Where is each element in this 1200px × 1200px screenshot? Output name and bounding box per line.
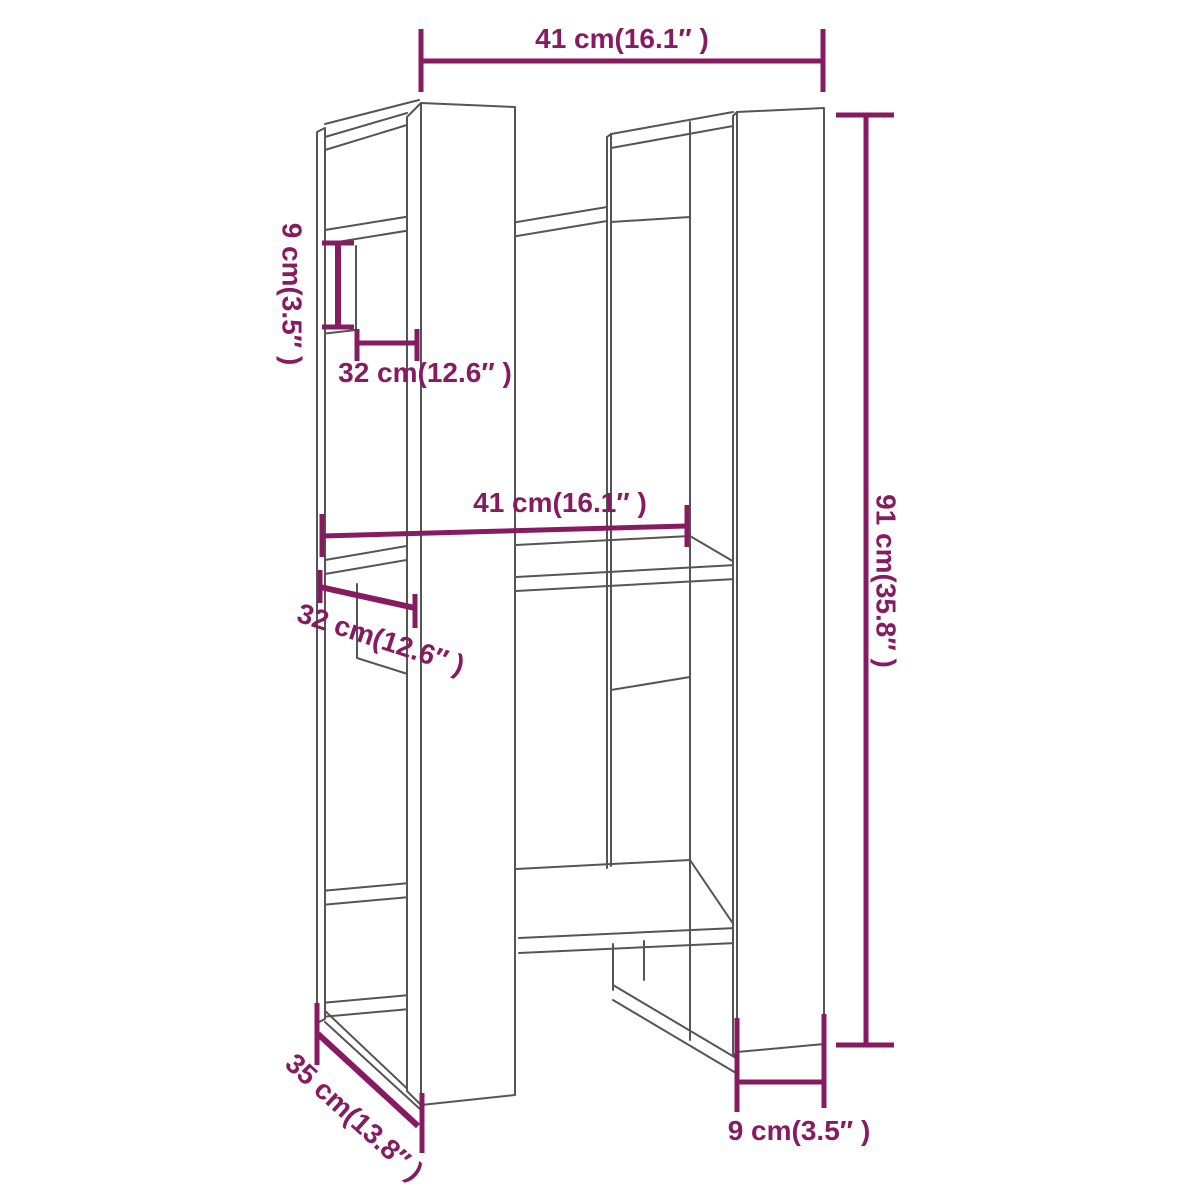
dimension-right-foot-width-label: 9 cm(3.5″ ): [728, 1115, 871, 1146]
shelf-middle: [516, 536, 736, 591]
dimension-total-height-label: 91 cm(35.8″ ): [871, 494, 902, 668]
dimension-left-back-height: 9 cm(3.5″ ): [277, 223, 355, 366]
dimension-top-width: 41 cm(16.1″ ): [421, 23, 823, 92]
shelf-top-left: [325, 100, 419, 150]
shelf-bottom-right: [516, 860, 736, 953]
dimension-left-back-height-label: 9 cm(3.5″ ): [277, 223, 308, 366]
right-tall-panel: [733, 108, 824, 1056]
dimension-middle-width-label: 41 cm(16.1″ ): [473, 487, 647, 518]
dimension-upper-shelf-depth-label: 32 cm(12.6″ ): [338, 357, 512, 388]
back-panel-middle-right: [611, 600, 690, 690]
dimension-top-width-label: 41 cm(16.1″ ): [535, 23, 709, 54]
furniture-dimension-drawing: 41 cm(16.1″ ) 9 cm(3.5″ ) 32 cm(12.6″ ) …: [0, 0, 1200, 1200]
diagram-canvas: 41 cm(16.1″ ) 9 cm(3.5″ ) 32 cm(12.6″ ) …: [0, 0, 1200, 1200]
bottom-rail-right: [613, 941, 736, 1073]
left-tall-panel: [407, 103, 515, 1105]
top-right-rail: [611, 112, 733, 222]
dimension-total-height: 91 cm(35.8″ ): [836, 115, 902, 1045]
